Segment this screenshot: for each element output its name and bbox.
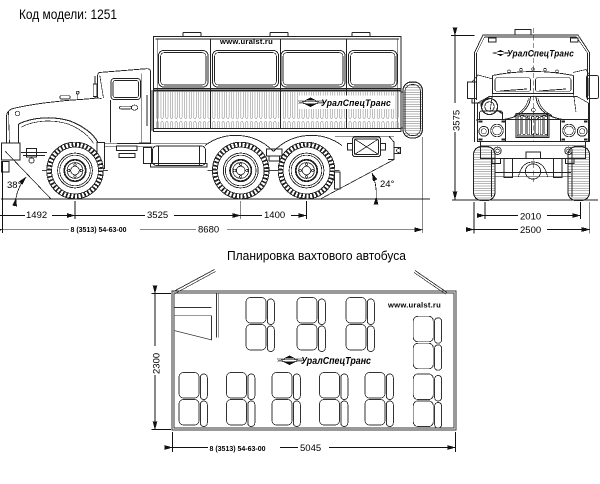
svg-text:2500: 2500 — [520, 225, 541, 236]
svg-text:2010: 2010 — [520, 211, 541, 222]
svg-text:1492: 1492 — [26, 210, 47, 221]
svg-text:8680: 8680 — [198, 225, 219, 236]
svg-text:5045: 5045 — [300, 443, 321, 454]
svg-text:УралСпецТранс: УралСпецТранс — [301, 355, 371, 367]
svg-text:38°: 38° — [7, 180, 22, 191]
svg-text:УралСпецТранс: УралСпецТранс — [321, 98, 391, 109]
svg-text:24°: 24° — [380, 179, 395, 190]
svg-text:Планировка вахтового автобуса: Планировка вахтового автобуса — [227, 248, 407, 263]
svg-text:2300: 2300 — [152, 353, 163, 374]
svg-text:УралСпецТранс: УралСпецТранс — [507, 49, 574, 60]
svg-text:3575: 3575 — [452, 110, 463, 131]
svg-text:www.uralst.ru: www.uralst.ru — [219, 37, 273, 46]
svg-text:8 (3513) 54-63-00: 8 (3513) 54-63-00 — [210, 446, 266, 453]
svg-text:Код модели: 1251: Код модели: 1251 — [19, 7, 117, 22]
svg-text:www.uralst.ru: www.uralst.ru — [387, 301, 441, 310]
svg-text:3525: 3525 — [147, 210, 168, 221]
svg-text:8 (3513) 54-63-00: 8 (3513) 54-63-00 — [71, 227, 127, 234]
svg-text:1400: 1400 — [264, 210, 285, 221]
